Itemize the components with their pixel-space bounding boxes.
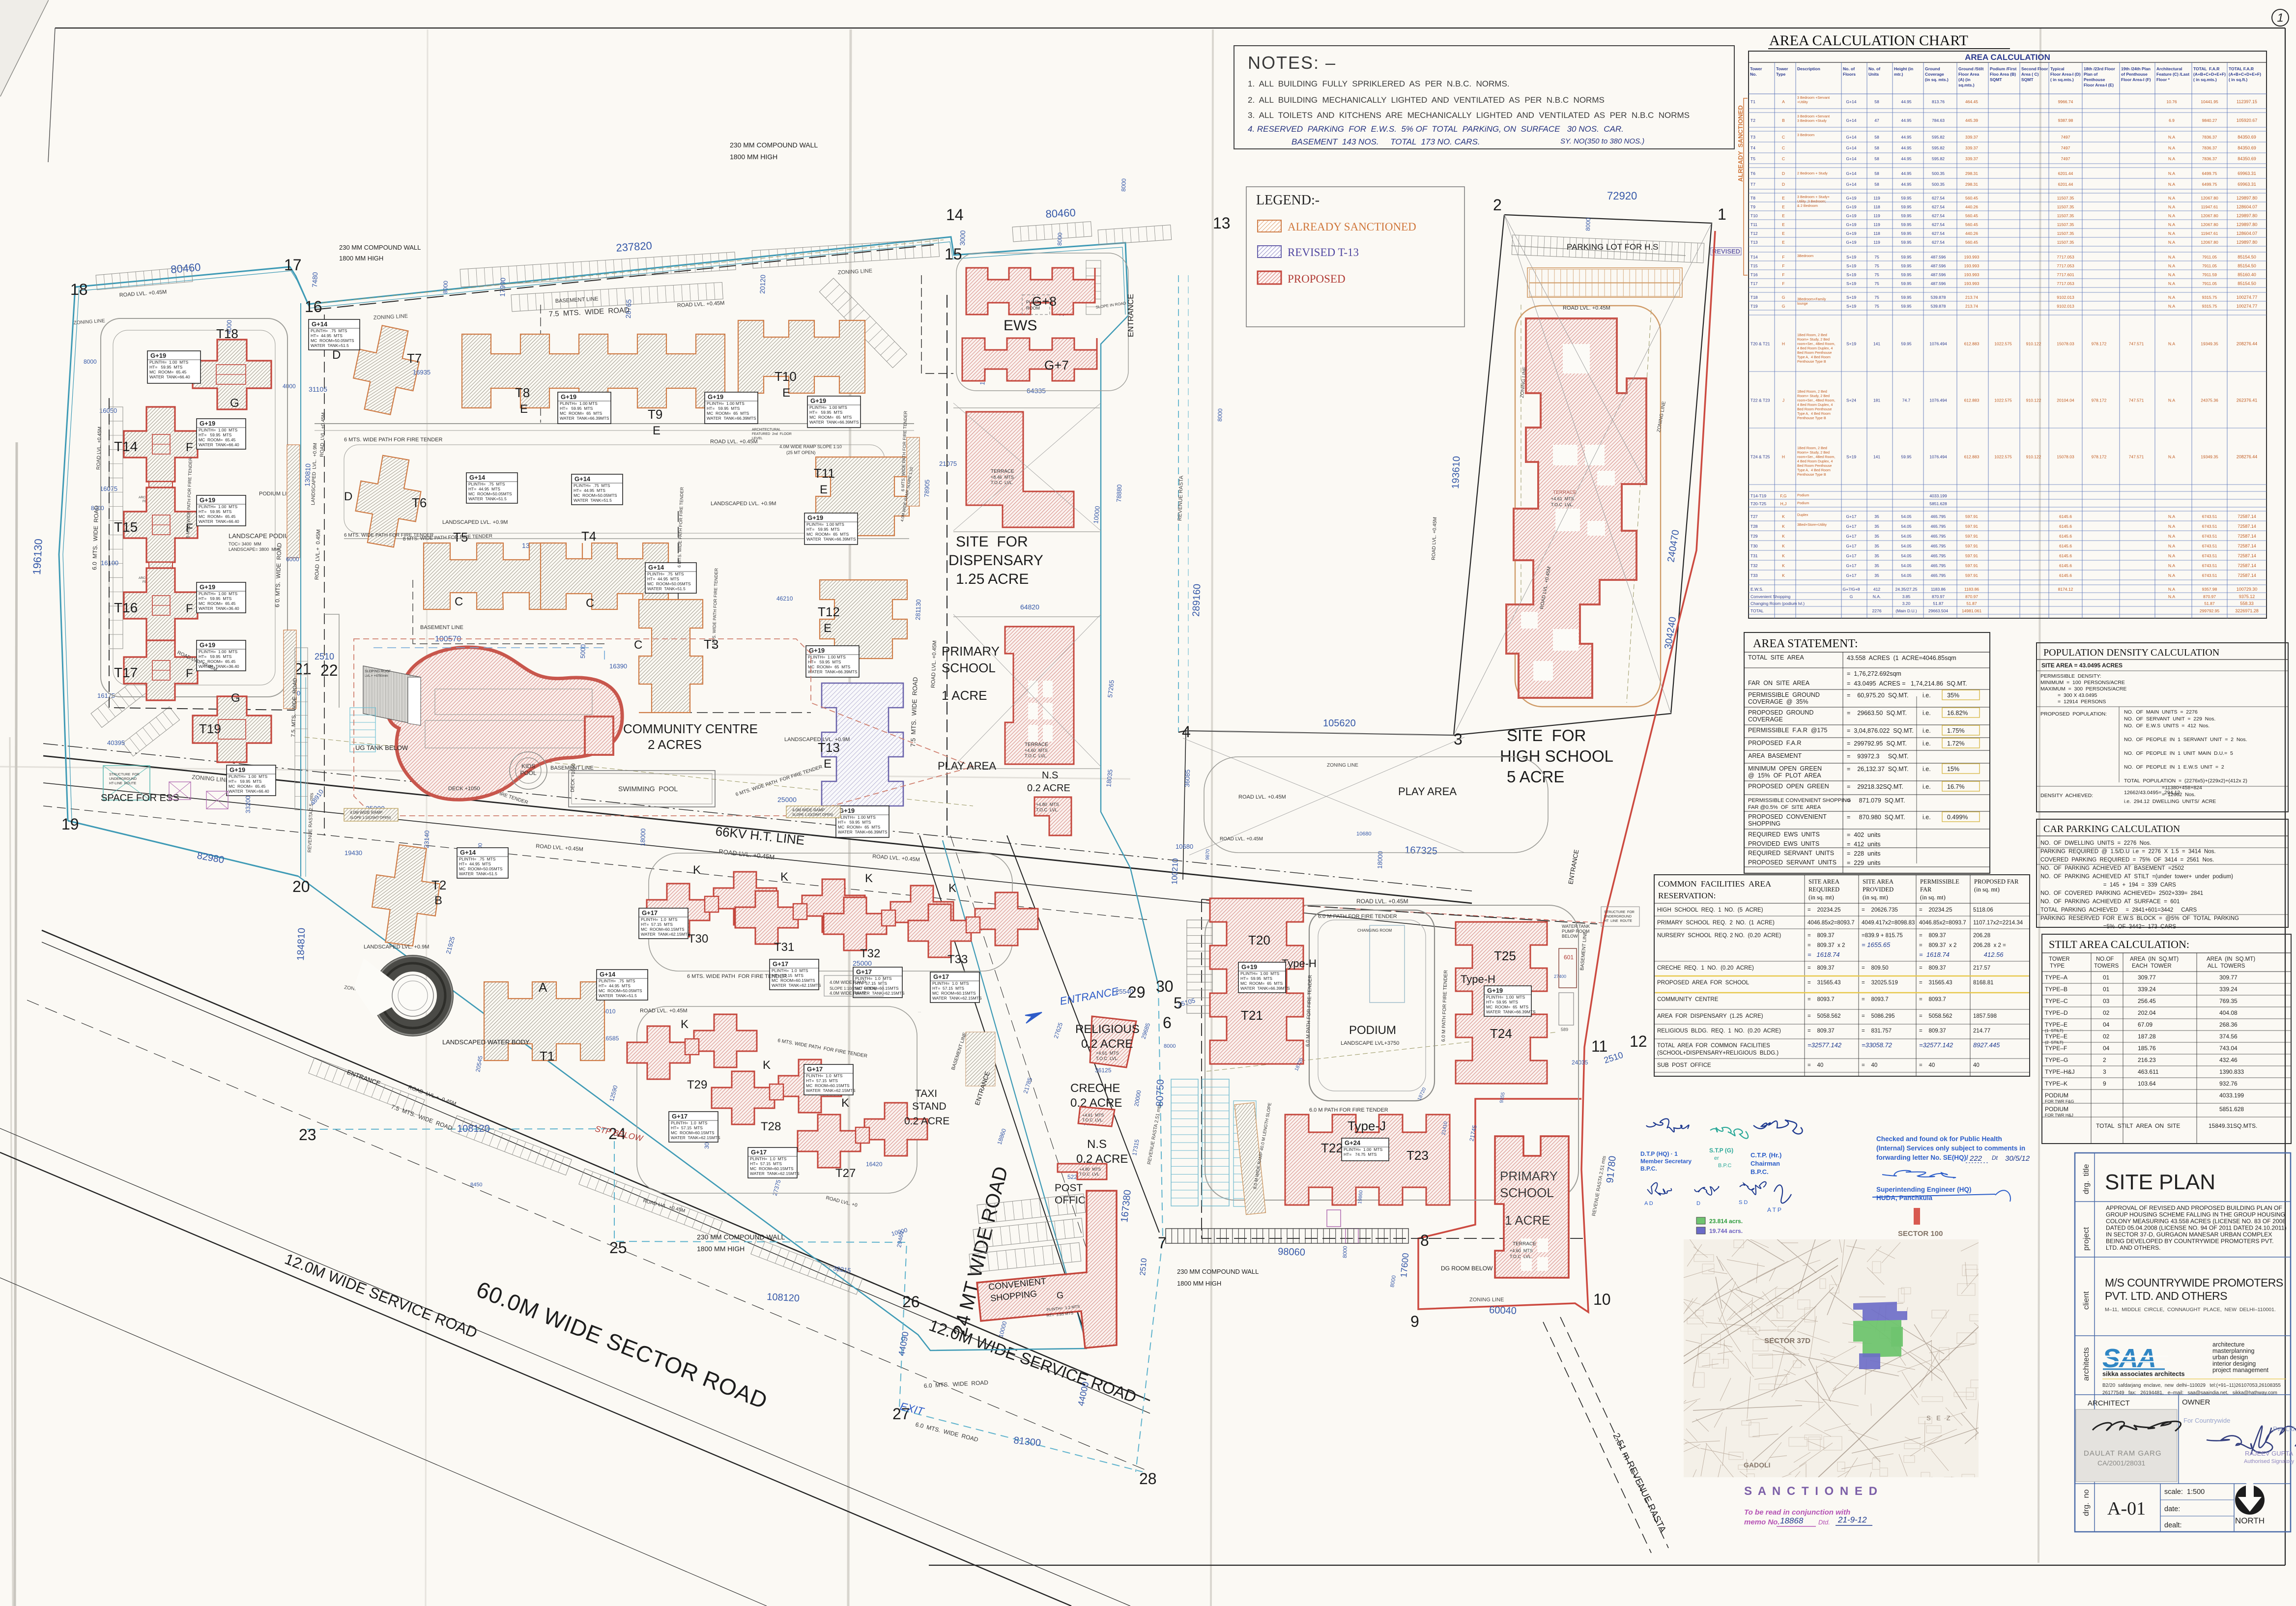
svg-text:213.74: 213.74 <box>1965 295 1978 300</box>
svg-text:6.9: 6.9 <box>2169 118 2175 123</box>
svg-text:= 809.37: = 809.37 <box>1808 965 1835 971</box>
svg-text:drg. title: drg. title <box>2082 1164 2091 1194</box>
svg-text:1076.494: 1076.494 <box>1929 342 1947 346</box>
svg-text:MC ROOM=50.05MTS: MC ROOM=50.05MTS <box>311 338 354 343</box>
svg-text:4046.85x2=8093.7: 4046.85x2=8093.7 <box>1919 920 1966 926</box>
svg-text:PLINTH= 1.00 MTS: PLINTH= 1.00 MTS <box>229 774 267 779</box>
svg-text:6743.51: 6743.51 <box>2202 563 2217 568</box>
svg-text:44.95: 44.95 <box>1901 156 1912 161</box>
svg-text:N.A: N.A <box>2168 573 2176 578</box>
svg-text:REQUIRED EWS UNITS: REQUIRED EWS UNITS <box>1748 831 1820 838</box>
svg-text:FEATURED 2nd FLOOR: FEATURED 2nd FLOOR <box>752 432 792 436</box>
svg-text:597.91: 597.91 <box>1965 553 1978 558</box>
svg-text:N.A: N.A <box>2168 455 2176 459</box>
svg-text:G+19: G+19 <box>1846 204 1856 209</box>
svg-text:196130: 196130 <box>30 539 45 575</box>
svg-text:K: K <box>780 870 788 884</box>
svg-text:HT= 59.95 MTS: HT= 59.95 MTS <box>560 406 593 411</box>
svg-text:+4.61 MTS: +4.61 MTS <box>1096 1051 1119 1056</box>
svg-text:E: E <box>520 402 528 416</box>
svg-text:GROUP HOUSING SCHEME FALLING I: GROUP HOUSING SCHEME FALLING IN THE GROU… <box>2106 1211 2285 1218</box>
svg-text:WATER TANK=66.39MTS: WATER TANK=66.39MTS <box>707 416 756 421</box>
svg-text:Type A, 4 Bed Room: Type A, 4 Bed Room <box>1797 411 1831 416</box>
svg-text:256.45: 256.45 <box>2138 998 2156 1004</box>
svg-text:NO. OF PEOPLE IN 1 E.W.S: NO. OF PEOPLE IN 1 E.W.S UNIT = 2 <box>2124 764 2224 770</box>
svg-text:1183.86: 1183.86 <box>1964 587 1979 592</box>
svg-text:A: A <box>1782 99 1785 104</box>
svg-text:PARKING LOT FOR H.S: PARKING LOT FOR H.S <box>1567 242 1658 252</box>
svg-text:F: F <box>186 667 193 680</box>
svg-text:LEVEL: LEVEL <box>752 437 763 440</box>
svg-text:MC ROOM= 65 MTS: MC ROOM= 65 MTS <box>1240 981 1283 986</box>
svg-text:T14: T14 <box>1751 255 1758 259</box>
svg-text:G+7: G+7 <box>1044 358 1069 373</box>
svg-text:230 MM COMPOUND WALL: 230 MM COMPOUND WALL <box>339 244 421 251</box>
svg-text:C: C <box>1782 156 1785 161</box>
svg-text:PLINTH= 1.00 MTS: PLINTH= 1.00 MTS <box>809 405 847 410</box>
svg-text:16050: 16050 <box>99 407 117 414</box>
svg-text:40: 40 <box>1973 1062 1980 1068</box>
svg-text:627.54: 627.54 <box>1932 231 1945 236</box>
svg-text:978.172: 978.172 <box>2092 342 2107 346</box>
svg-text:12067.80: 12067.80 <box>2201 240 2218 245</box>
svg-text:9840.27: 9840.27 <box>2202 118 2217 123</box>
svg-text:T10: T10 <box>775 369 797 384</box>
svg-text:MC ROOM=60.15MTS: MC ROOM=60.15MTS <box>750 1166 794 1171</box>
svg-text:T30: T30 <box>688 932 708 946</box>
svg-text:612.883: 612.883 <box>1964 398 1980 403</box>
svg-text:72587.14: 72587.14 <box>2238 563 2256 568</box>
svg-text:G+19: G+19 <box>150 352 166 359</box>
svg-text:15%: 15% <box>1947 766 1959 773</box>
svg-text:T6: T6 <box>412 495 427 510</box>
svg-text:N.A: N.A <box>2168 272 2176 277</box>
svg-text:6145.6: 6145.6 <box>2059 563 2072 568</box>
svg-text:128604.07: 128604.07 <box>2237 231 2258 236</box>
svg-text:627.54: 627.54 <box>1932 196 1945 201</box>
svg-text:103.64: 103.64 <box>2138 1080 2156 1087</box>
svg-text:TYPE–H&J: TYPE–H&J <box>2045 1068 2075 1075</box>
svg-text:35: 35 <box>1874 553 1879 558</box>
svg-text:G+19: G+19 <box>200 583 215 591</box>
svg-text:CRECHE: CRECHE <box>1070 1082 1120 1095</box>
svg-text:PRIMARY: PRIMARY <box>942 644 1000 659</box>
svg-text:G+19: G+19 <box>1846 222 1856 227</box>
svg-text:3 Bedroom +Servant: 3 Bedroom +Servant <box>1797 95 1830 100</box>
svg-text:35: 35 <box>1874 573 1879 578</box>
svg-text:CA/2001/28031: CA/2001/28031 <box>2097 1459 2146 1467</box>
svg-text:MC ROOM= 65.45: MC ROOM= 65.45 <box>149 370 187 374</box>
svg-text:TERRACE: TERRACE <box>991 469 1014 474</box>
svg-text:T32: T32 <box>860 947 880 960</box>
svg-text:F: F <box>1782 255 1784 259</box>
svg-text:9966.74: 9966.74 <box>2058 99 2073 104</box>
svg-text:ALL TOWERS: ALL TOWERS <box>2208 963 2245 969</box>
svg-text:11947.61: 11947.61 <box>2201 204 2218 209</box>
svg-text:(in sq. mt): (in sq. mt) <box>1974 886 2000 893</box>
svg-text:= 31565.43: = 31565.43 <box>1919 980 1952 986</box>
svg-text:595.82: 595.82 <box>1932 145 1945 150</box>
svg-text:193.993: 193.993 <box>1964 263 1980 268</box>
svg-text:3 Bedroom +Study: 3 Bedroom +Study <box>1797 118 1827 123</box>
svg-text:932.76: 932.76 <box>2219 1080 2238 1087</box>
svg-text:OWNER: OWNER <box>2182 1398 2210 1406</box>
svg-text:T15: T15 <box>1751 263 1758 268</box>
svg-text:Floor Area-I (E): Floor Area-I (E) <box>2084 83 2114 87</box>
svg-text:MAXIMUM = 300 PERSONS/ACRE: MAXIMUM = 300 PERSONS/ACRE <box>2040 686 2126 692</box>
svg-text:= 20234.25: = 20234.25 <box>1919 907 1952 913</box>
svg-text:architecture: architecture <box>2212 1341 2244 1348</box>
svg-text:B: B <box>434 894 442 907</box>
svg-text:T5: T5 <box>1751 156 1755 161</box>
svg-text:NO. OF SERVANT UNIT = 229: NO. OF SERVANT UNIT = 229 Nos. <box>2124 716 2215 722</box>
svg-text:7717.601: 7717.601 <box>2057 272 2074 277</box>
svg-text:6743.51: 6743.51 <box>2202 573 2217 578</box>
svg-text:WATER TANK=62.15MTS: WATER TANK=62.15MTS <box>772 983 821 988</box>
svg-text:9315.75: 9315.75 <box>2202 295 2217 300</box>
svg-text:193.993: 193.993 <box>1964 272 1980 277</box>
svg-text:T25: T25 <box>1494 948 1516 963</box>
svg-text:747.571: 747.571 <box>2129 342 2144 346</box>
svg-text:27400: 27400 <box>1554 974 1566 979</box>
svg-text:D.T.P (HQ) · 1: D.T.P (HQ) · 1 <box>1640 1150 1678 1157</box>
svg-text:TOTAL F.A.R: TOTAL F.A.R <box>2193 66 2219 71</box>
svg-text:18th /23rd Floor: 18th /23rd Floor <box>2084 66 2115 71</box>
svg-text:B2/20 safdarjang enclave, n: B2/20 safdarjang enclave, new delhi–1100… <box>2102 1383 2281 1388</box>
svg-text:WATER TANK=66.39MTS: WATER TANK=66.39MTS <box>838 830 888 834</box>
svg-text:T3: T3 <box>1751 135 1755 140</box>
svg-text:COMMUNITY CENTRE: COMMUNITY CENTRE <box>1657 997 1719 1003</box>
svg-text:44.95: 44.95 <box>1901 171 1912 176</box>
svg-text:MC ROOM= 65.45: MC ROOM= 65.45 <box>199 601 236 606</box>
svg-text:80750: 80750 <box>1154 1079 1166 1107</box>
svg-text:= 5086.295: = 5086.295 <box>1862 1013 1894 1019</box>
svg-text:WATER TANK=62.15MTS: WATER TANK=62.15MTS <box>750 1171 800 1176</box>
svg-text:N.A: N.A <box>2168 587 2176 592</box>
svg-text:= 32025.519: = 32025.519 <box>1862 980 1898 986</box>
svg-text:75: 75 <box>1874 295 1879 300</box>
svg-text:PLINTH= 1.00 MTS: PLINTH= 1.00 MTS <box>199 649 237 654</box>
svg-text:SITE FOR: SITE FOR <box>956 534 1028 550</box>
svg-text:298.31: 298.31 <box>1965 182 1978 187</box>
svg-text:59.95: 59.95 <box>1901 342 1912 346</box>
svg-text:room+Ser., 4Bed Room,: room+Ser., 4Bed Room, <box>1797 455 1835 459</box>
svg-text:Height (in: Height (in <box>1894 66 1913 71</box>
svg-text:23.814 acrs.: 23.814 acrs. <box>1709 1218 1743 1225</box>
svg-text:ARCHITECT: ARCHITECT <box>2088 1399 2130 1407</box>
svg-text:PLINTH= 1.00 MTS: PLINTH= 1.00 MTS <box>560 401 598 406</box>
svg-text:G+19: G+19 <box>810 397 826 404</box>
svg-text:PUMP: PUMP <box>1026 300 1039 305</box>
svg-text:11507.35: 11507.35 <box>2057 204 2074 209</box>
svg-text:PROPOSED SERVANT UNITS: PROPOSED SERVANT UNITS <box>1748 859 1837 866</box>
svg-text:54.05: 54.05 <box>1901 544 1912 548</box>
svg-text:Type-H: Type-H <box>1282 957 1317 970</box>
svg-text:206.28: 206.28 <box>1973 933 1990 939</box>
svg-text:15078.03: 15078.03 <box>2057 342 2074 346</box>
svg-text:room+Ser., 4Bed Room,: room+Ser., 4Bed Room, <box>1797 398 1835 402</box>
svg-text:412: 412 <box>1873 587 1880 592</box>
svg-text:59.95: 59.95 <box>1901 295 1912 300</box>
svg-text:6145.6: 6145.6 <box>2059 544 2072 548</box>
svg-text:51.87: 51.87 <box>1966 601 1977 606</box>
svg-text:PODIUM: PODIUM <box>2045 1106 2068 1113</box>
svg-text:4 Bed Room Duplex, 4: 4 Bed Room Duplex, 4 <box>1797 402 1833 407</box>
svg-text:214.77: 214.77 <box>1973 1028 1990 1034</box>
svg-text:T.O.C LVL.: T.O.C LVL. <box>1551 502 1574 507</box>
svg-text:i.e.: i.e. <box>1923 740 1931 747</box>
svg-text:K: K <box>865 872 873 885</box>
svg-text:Area ( C): Area ( C) <box>2021 72 2039 77</box>
svg-text:47: 47 <box>1874 118 1879 123</box>
svg-text:129897.80: 129897.80 <box>2237 222 2258 227</box>
svg-text:44.95: 44.95 <box>1901 118 1912 123</box>
svg-text:G+7/G+8: G+7/G+8 <box>1843 587 1860 592</box>
svg-text:G+14: G+14 <box>312 320 328 328</box>
svg-text:187.28: 187.28 <box>2138 1033 2156 1040</box>
svg-text:T.O.C LVL.: T.O.C LVL. <box>1082 1118 1103 1122</box>
svg-text:4 Bed Room Duplex, 4: 4 Bed Room Duplex, 4 <box>1797 346 1833 350</box>
svg-text:forwarding letter No. SE(HQ)/: forwarding letter No. SE(HQ)/ <box>1876 1154 1968 1161</box>
svg-text:FOR TWR F&G: FOR TWR F&G <box>2045 1099 2074 1104</box>
svg-text:K: K <box>1782 573 1785 578</box>
svg-text:MC ROOM= 65 MTS: MC ROOM= 65 MTS <box>1486 1004 1529 1009</box>
svg-text:58: 58 <box>1874 156 1879 161</box>
svg-text:dealt:: dealt: <box>2164 1521 2181 1529</box>
svg-text:612.883: 612.883 <box>1964 455 1980 459</box>
svg-text:HT= 59.95 MTS: HT= 59.95 MTS <box>808 660 841 664</box>
svg-text:0.2 ACRE: 0.2 ACRE <box>904 1116 949 1127</box>
svg-text:EWS: EWS <box>1004 317 1037 334</box>
svg-text:1800 MM HIGH: 1800 MM HIGH <box>1177 1280 1221 1287</box>
svg-text:0.2 ACRE: 0.2 ACRE <box>1027 783 1070 794</box>
svg-text:AREA (IN SQ.MT): AREA (IN SQ.MT) <box>2130 956 2179 962</box>
svg-text:4049.417x2=8098.83: 4049.417x2=8098.83 <box>1862 920 1915 926</box>
svg-text:TYPE–C: TYPE–C <box>2045 998 2068 1004</box>
svg-text:MINIMUM OPEN GREEN: MINIMUM OPEN GREEN <box>1748 765 1822 772</box>
svg-text:19430: 19430 <box>344 849 362 857</box>
svg-text:T18: T18 <box>1751 295 1758 300</box>
svg-text:185.76: 185.76 <box>2138 1045 2156 1052</box>
svg-text:N.A.: N.A. <box>1873 594 1881 599</box>
svg-text:167325: 167325 <box>1405 845 1437 857</box>
svg-text:119: 119 <box>1873 213 1880 218</box>
svg-text:G+17: G+17 <box>807 1065 823 1073</box>
svg-text:UNDERGROUND: UNDERGROUND <box>109 777 137 781</box>
svg-text:NO. OF PEOPLE IN 1 UNIT: NO. OF PEOPLE IN 1 UNIT MAIN D.U.= 5 <box>2124 750 2233 756</box>
svg-text:MC ROOM=60.15MTS: MC ROOM=60.15MTS <box>806 1083 850 1088</box>
svg-text:Penthouse Type B: Penthouse Type B <box>1797 472 1826 477</box>
svg-text:58: 58 <box>1874 171 1879 176</box>
svg-text:9375.12: 9375.12 <box>2239 594 2255 599</box>
svg-text:PLINTH= 1.0 MTS: PLINTH= 1.0 MTS <box>671 1120 708 1125</box>
svg-text:BASEMENT 143 NOS. TOTAL: BASEMENT 143 NOS. TOTAL 173 NO. CARS. <box>1291 137 1480 146</box>
svg-text:E: E <box>1782 213 1785 218</box>
svg-text:To be read in conjunction with: To be read in conjunction with <box>1744 1508 1850 1517</box>
svg-text:COLONY MEASURING 43.558 ACRES: COLONY MEASURING 43.558 ACRES (LICENSE N… <box>2106 1218 2286 1225</box>
svg-text:WATER TANK=62.15MTS: WATER TANK=62.15MTS <box>932 996 982 1001</box>
svg-text:N.A: N.A <box>2168 553 2176 558</box>
svg-text:4046.85x2=8093.7: 4046.85x2=8093.7 <box>1808 920 1855 926</box>
svg-text:WATER TANK=66.39MTS: WATER TANK=66.39MTS <box>806 537 856 542</box>
svg-text:K: K <box>1782 563 1785 568</box>
svg-text:769.35: 769.35 <box>2219 998 2238 1004</box>
svg-text:67.09: 67.09 <box>2138 1021 2152 1028</box>
svg-text:E: E <box>1782 240 1785 245</box>
svg-text:NORTH: NORTH <box>2235 1516 2265 1525</box>
svg-text:NO. OF PARKING ACHIEVED AT: NO. OF PARKING ACHIEVED AT BASEMENT =250… <box>2040 865 2184 871</box>
svg-text:POST: POST <box>1055 1182 1083 1194</box>
svg-text:= 20234.25: = 20234.25 <box>1808 907 1840 913</box>
svg-text:HT= 59.95 MTS: HT= 59.95 MTS <box>707 406 740 411</box>
svg-text:2510: 2510 <box>1139 1258 1148 1276</box>
svg-text:FOR TWR H&J: FOR TWR H&J <box>2045 1113 2073 1118</box>
svg-text:G+14: G+14 <box>460 849 476 856</box>
svg-text:TYPE–B: TYPE–B <box>2045 986 2067 993</box>
svg-text:@ 15% OF PLOT AREA: @ 15% OF PLOT AREA <box>1748 772 1821 779</box>
svg-text:19th /24th Plan: 19th /24th Plan <box>2121 66 2151 71</box>
svg-text:M–11, MIDDLE CIRCLE, CONNAU: M–11, MIDDLE CIRCLE, CONNAUGHT PLACE, NE… <box>2105 1307 2276 1313</box>
svg-text:i.e.: i.e. <box>1923 692 1931 699</box>
svg-text:Penthouse Type B: Penthouse Type B <box>1797 359 1826 364</box>
svg-text:T11: T11 <box>814 466 835 481</box>
svg-text:Floor Area-I (F): Floor Area-I (F) <box>2121 77 2151 82</box>
svg-text:7497: 7497 <box>2061 156 2070 161</box>
svg-text:58: 58 <box>1874 99 1879 104</box>
svg-text:3000: 3000 <box>958 230 967 246</box>
svg-text:Floo Area (B): Floo Area (B) <box>1990 72 2016 77</box>
svg-text:G+17: G+17 <box>672 1113 688 1120</box>
svg-text:500.35: 500.35 <box>1932 182 1945 187</box>
svg-text:487.596: 487.596 <box>1931 263 1946 268</box>
svg-text:PROPOSED POPULATION:: PROPOSED POPULATION: <box>2040 711 2107 717</box>
svg-text:69963.31: 69963.31 <box>2238 171 2256 176</box>
svg-text:PLINTH= .75 MTS: PLINTH= .75 MTS <box>459 857 496 861</box>
svg-text:WATER TANK=66.39MTS: WATER TANK=66.39MTS <box>560 416 609 421</box>
svg-text:WATER TANK=51.5: WATER TANK=51.5 <box>574 498 612 503</box>
svg-text:T8: T8 <box>1751 196 1755 201</box>
svg-text:11507.35: 11507.35 <box>2057 213 2074 218</box>
svg-text:LTD. AND OTHERS.: LTD. AND OTHERS. <box>2106 1244 2161 1251</box>
svg-text:S A N C T I O N E D: S A N C T I O N E D <box>1744 1485 1879 1498</box>
svg-text:NO. OF DWELLING UNITS = 2: NO. OF DWELLING UNITS = 2276 Nos. <box>2040 840 2151 846</box>
svg-text:S D: S D <box>1739 1200 1748 1205</box>
svg-text:487.596: 487.596 <box>1931 281 1946 286</box>
svg-text:PARKING REQUIRED @ 1.5/D.U: PARKING REQUIRED @ 1.5/D.U i.e = 2276 X … <box>2040 849 2216 855</box>
svg-text:E: E <box>782 386 790 400</box>
svg-text:3: 3 <box>2103 1068 2106 1075</box>
svg-text:10.76: 10.76 <box>2166 99 2177 104</box>
svg-text:NO. OF E.W.S UNITS = 412: NO. OF E.W.S UNITS = 412 Nos. <box>2124 723 2210 729</box>
svg-text:2: 2 <box>2103 1057 2106 1063</box>
svg-text:5851.628: 5851.628 <box>2219 1106 2244 1113</box>
svg-text:HT= 59.95 MTS: HT= 59.95 MTS <box>806 527 840 532</box>
svg-text:59.95: 59.95 <box>1901 196 1912 201</box>
svg-text:T19: T19 <box>1751 304 1758 309</box>
svg-text:T9: T9 <box>648 407 662 422</box>
svg-text:C: C <box>1782 145 1785 150</box>
svg-text:T20-T25: T20-T25 <box>1751 501 1766 506</box>
svg-text:72587.14: 72587.14 <box>2238 544 2256 548</box>
svg-text:SLOPE 1:10(25MT OPEN): SLOPE 1:10(25MT OPEN) <box>830 986 876 991</box>
svg-text:masterplanning: masterplanning <box>2212 1348 2255 1354</box>
svg-text:108120: 108120 <box>767 1291 800 1304</box>
svg-text:N.A: N.A <box>2168 563 2176 568</box>
svg-text:46210: 46210 <box>776 595 793 602</box>
svg-text:interior desiging: interior desiging <box>2212 1360 2256 1367</box>
svg-text:PLINTH= 1.0 MTS: PLINTH= 1.0 MTS <box>806 1073 843 1078</box>
svg-text:T27: T27 <box>835 1167 856 1180</box>
svg-text:(A+B+C+D+E+F): (A+B+C+D+E+F) <box>2193 72 2226 77</box>
svg-text:C.T.P. (Hr.): C.T.P. (Hr.) <box>1751 1151 1781 1159</box>
svg-text:TOTAL AREA FOR COMMON FACI: TOTAL AREA FOR COMMON FACILITIES <box>1657 1043 1770 1049</box>
svg-text:19349.35: 19349.35 <box>2201 455 2218 459</box>
svg-text:T12: T12 <box>818 604 840 619</box>
svg-text:HT= 57.15 MTS: HT= 57.15 MTS <box>932 986 964 991</box>
svg-text:HT= 59.95 MTS: HT= 59.95 MTS <box>1240 976 1272 981</box>
svg-text:18: 18 <box>70 281 88 298</box>
svg-text:2276: 2276 <box>1872 608 1882 613</box>
svg-text:G+19: G+19 <box>809 647 825 654</box>
svg-text:G+14: G+14 <box>574 475 591 483</box>
svg-text:MC ROOM=50.05MTS: MC ROOM=50.05MTS <box>599 988 642 993</box>
svg-text:Room+ Study, 2 Bed: Room+ Study, 2 Bed <box>1797 394 1830 398</box>
svg-text:40395: 40395 <box>107 739 125 746</box>
svg-text:G+17: G+17 <box>1846 514 1856 519</box>
svg-text:9102.013: 9102.013 <box>2057 304 2074 309</box>
svg-text:E: E <box>824 622 832 635</box>
svg-text:WATER TANK=62.15MTS: WATER TANK=62.15MTS <box>671 1135 720 1140</box>
svg-text:LEGEND:-: LEGEND:- <box>1256 193 1320 208</box>
svg-text:465.795: 465.795 <box>1931 524 1946 529</box>
svg-text:Floors: Floors <box>1843 72 1856 77</box>
svg-text:D: D <box>1782 182 1785 187</box>
svg-text:HT= 59.95 MTS: HT= 59.95 MTS <box>229 779 262 784</box>
svg-text:870.97: 870.97 <box>2203 594 2216 599</box>
svg-text:6: 6 <box>1163 1014 1172 1032</box>
svg-text:= 809.50: = 809.50 <box>1862 965 1889 971</box>
svg-text:59.95: 59.95 <box>1901 263 1912 268</box>
svg-text:3226971.28: 3226971.28 <box>2235 608 2259 613</box>
svg-text:6145.6: 6145.6 <box>2059 524 2072 529</box>
svg-text:105920.67: 105920.67 <box>2237 118 2258 123</box>
svg-text:112397.15: 112397.15 <box>2237 99 2257 104</box>
svg-text:WATER TANK=51.5: WATER TANK=51.5 <box>599 993 637 998</box>
svg-text:16.7%: 16.7% <box>1947 783 1964 790</box>
svg-text:560.45: 560.45 <box>1965 213 1978 218</box>
svg-text:02: 02 <box>2103 1033 2110 1040</box>
svg-text:= 831.757: = 831.757 <box>1862 1028 1892 1034</box>
svg-text:K: K <box>693 863 701 877</box>
svg-text:MC ROOM=50.05MTS: MC ROOM=50.05MTS <box>574 493 617 498</box>
svg-text:129897.80: 129897.80 <box>2237 196 2258 201</box>
svg-text:12662/43.0495= 294.12: 12662/43.0495= 294.12 <box>2124 790 2180 796</box>
svg-text:8000: 8000 <box>1216 408 1224 422</box>
svg-text:E.W.S.: E.W.S. <box>1751 587 1763 592</box>
svg-text:G+14: G+14 <box>648 564 664 571</box>
svg-text:MC ROOM=60.15MTS: MC ROOM=60.15MTS <box>932 991 976 996</box>
svg-text:+4.61 MTS: +4.61 MTS <box>1082 1113 1104 1118</box>
svg-text:13: 13 <box>1213 214 1231 232</box>
svg-text:HT= 44.95 MTS: HT= 44.95 MTS <box>468 487 500 491</box>
svg-text:G+17: G+17 <box>773 960 788 968</box>
svg-text:6.0 M PATH FOR FIRE TENDER: 6.0 M PATH FOR FIRE TENDER <box>1309 1107 1388 1113</box>
svg-text:128604.07: 128604.07 <box>2237 204 2258 209</box>
svg-text:(A+B+C+D+E+F): (A+B+C+D+E+F) <box>2229 72 2261 77</box>
svg-text:FAR @0.5% OF SITE AREA: FAR @0.5% OF SITE AREA <box>1748 804 1821 810</box>
svg-text:K: K <box>763 1059 771 1072</box>
svg-text:G+19: G+19 <box>200 641 215 649</box>
